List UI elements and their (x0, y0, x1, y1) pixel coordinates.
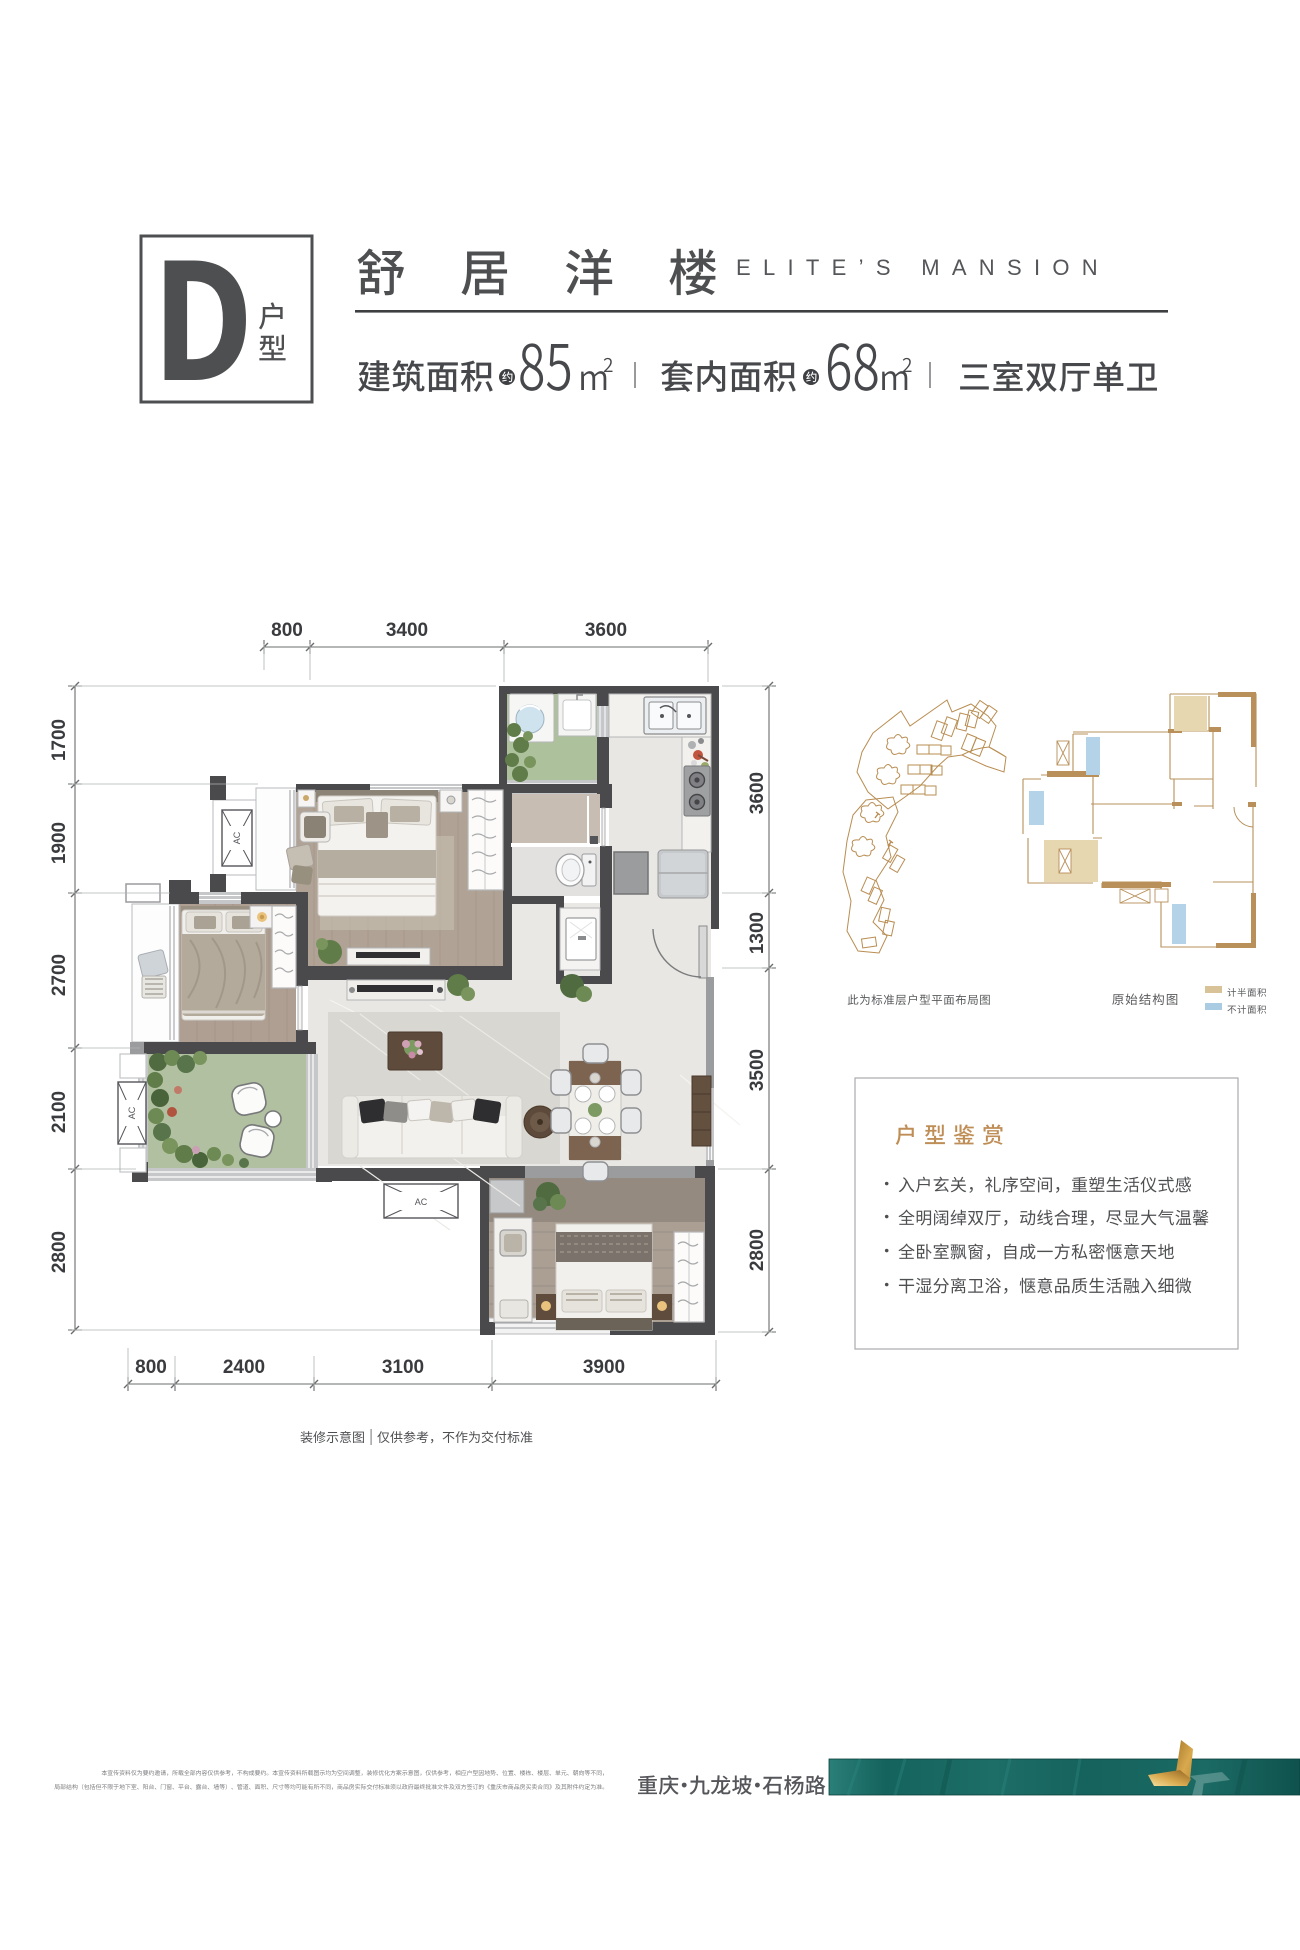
svg-text:2800: 2800 (49, 1231, 70, 1273)
svg-text:ELITE’S MANSION: ELITE’S MANSION (736, 255, 1110, 280)
svg-text:2400: 2400 (223, 1357, 265, 1378)
svg-text:2700: 2700 (49, 954, 70, 996)
svg-text:3400: 3400 (386, 620, 428, 641)
svg-text:3100: 3100 (382, 1357, 424, 1378)
svg-text:3600: 3600 (747, 772, 768, 814)
svg-text:AC: AC (232, 831, 242, 844)
svg-text:1300: 1300 (747, 912, 768, 954)
svg-text:800: 800 (135, 1357, 167, 1378)
svg-text:2100: 2100 (49, 1091, 70, 1133)
svg-text:800: 800 (271, 620, 303, 641)
svg-text:2800: 2800 (747, 1229, 768, 1271)
svg-text:AC: AC (127, 1106, 137, 1119)
svg-text:1700: 1700 (49, 719, 70, 761)
svg-text:3600: 3600 (585, 620, 627, 641)
svg-text:3900: 3900 (583, 1357, 625, 1378)
svg-text:AC: AC (415, 1197, 428, 1207)
svg-text:3500: 3500 (747, 1049, 768, 1091)
svg-text:1900: 1900 (49, 822, 70, 864)
